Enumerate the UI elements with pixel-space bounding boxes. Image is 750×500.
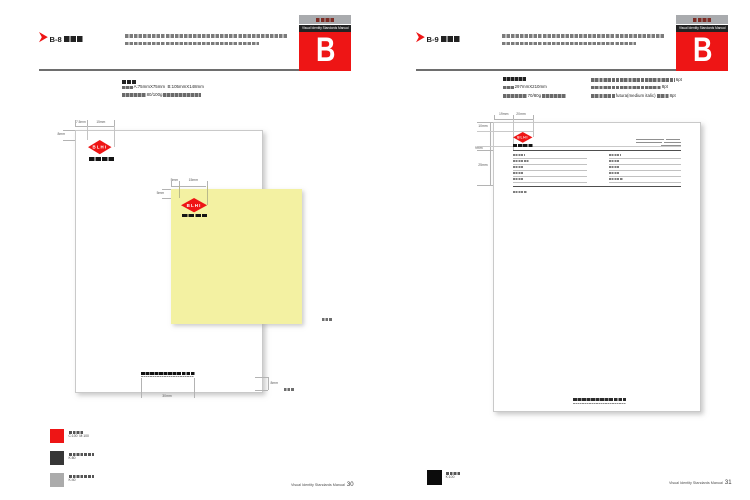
svg-text:BLHI: BLHI <box>518 135 529 139</box>
svg-text:BLHI: BLHI <box>187 203 202 208</box>
svg-text:BLHI: BLHI <box>92 144 107 149</box>
